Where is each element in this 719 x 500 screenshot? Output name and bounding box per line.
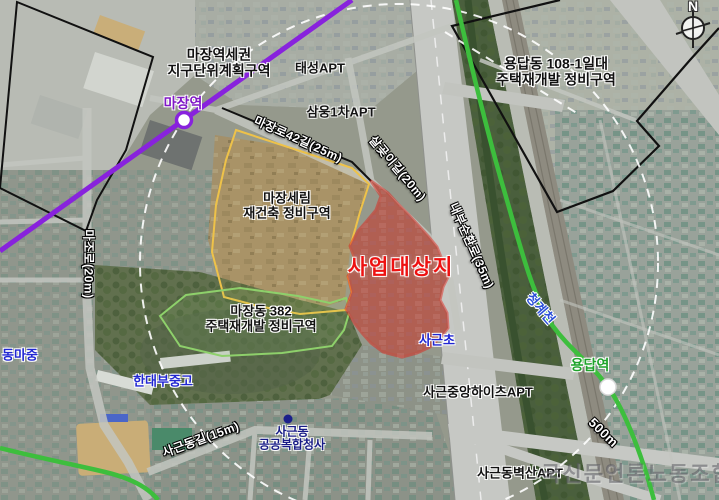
majang-station-marker [177, 113, 192, 128]
satellite-map [0, 0, 719, 500]
redevelopment-map: N 마장역세권 지구단위계획구역 용답동 108-1일대 주택재개발 정비구역 … [0, 0, 719, 500]
yongdap-station-marker [600, 379, 616, 395]
community-center-dot [284, 415, 293, 424]
